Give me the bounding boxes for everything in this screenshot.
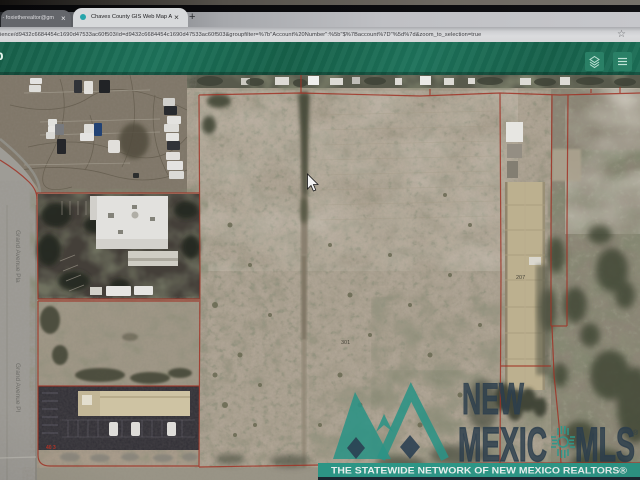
svg-text:THE STATEWIDE NETWORK OF NEW M: THE STATEWIDE NETWORK OF NEW MEXICO REAL… <box>331 466 627 477</box>
svg-text:Grand Avenue Pla: Grand Avenue Pla <box>14 230 21 283</box>
svg-text:NEW: NEW <box>462 373 524 424</box>
svg-text:40 3: 40 3 <box>46 445 56 451</box>
svg-text:301: 301 <box>341 340 350 346</box>
svg-text:Grand Avenue Pl: Grand Avenue Pl <box>14 363 21 413</box>
svg-text:207: 207 <box>516 275 525 281</box>
svg-text:®: ® <box>633 429 639 437</box>
